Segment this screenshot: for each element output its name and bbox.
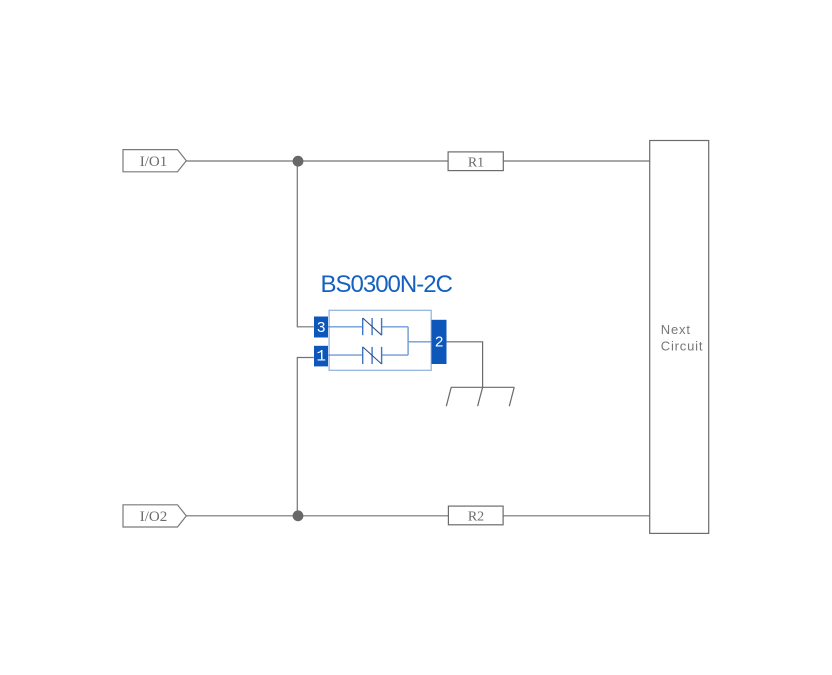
svg-text:R2: R2 (468, 510, 484, 525)
svg-text:2: 2 (435, 333, 443, 350)
svg-text:I/O1: I/O1 (140, 154, 168, 170)
svg-text:R1: R1 (468, 155, 484, 170)
svg-text:3: 3 (317, 319, 325, 336)
svg-text:Next: Next (661, 322, 691, 337)
svg-text:I/O2: I/O2 (140, 509, 168, 525)
svg-text:BS0300N-2C: BS0300N-2C (321, 271, 453, 298)
svg-text:Circuit: Circuit (661, 339, 703, 354)
svg-text:1: 1 (316, 348, 326, 366)
